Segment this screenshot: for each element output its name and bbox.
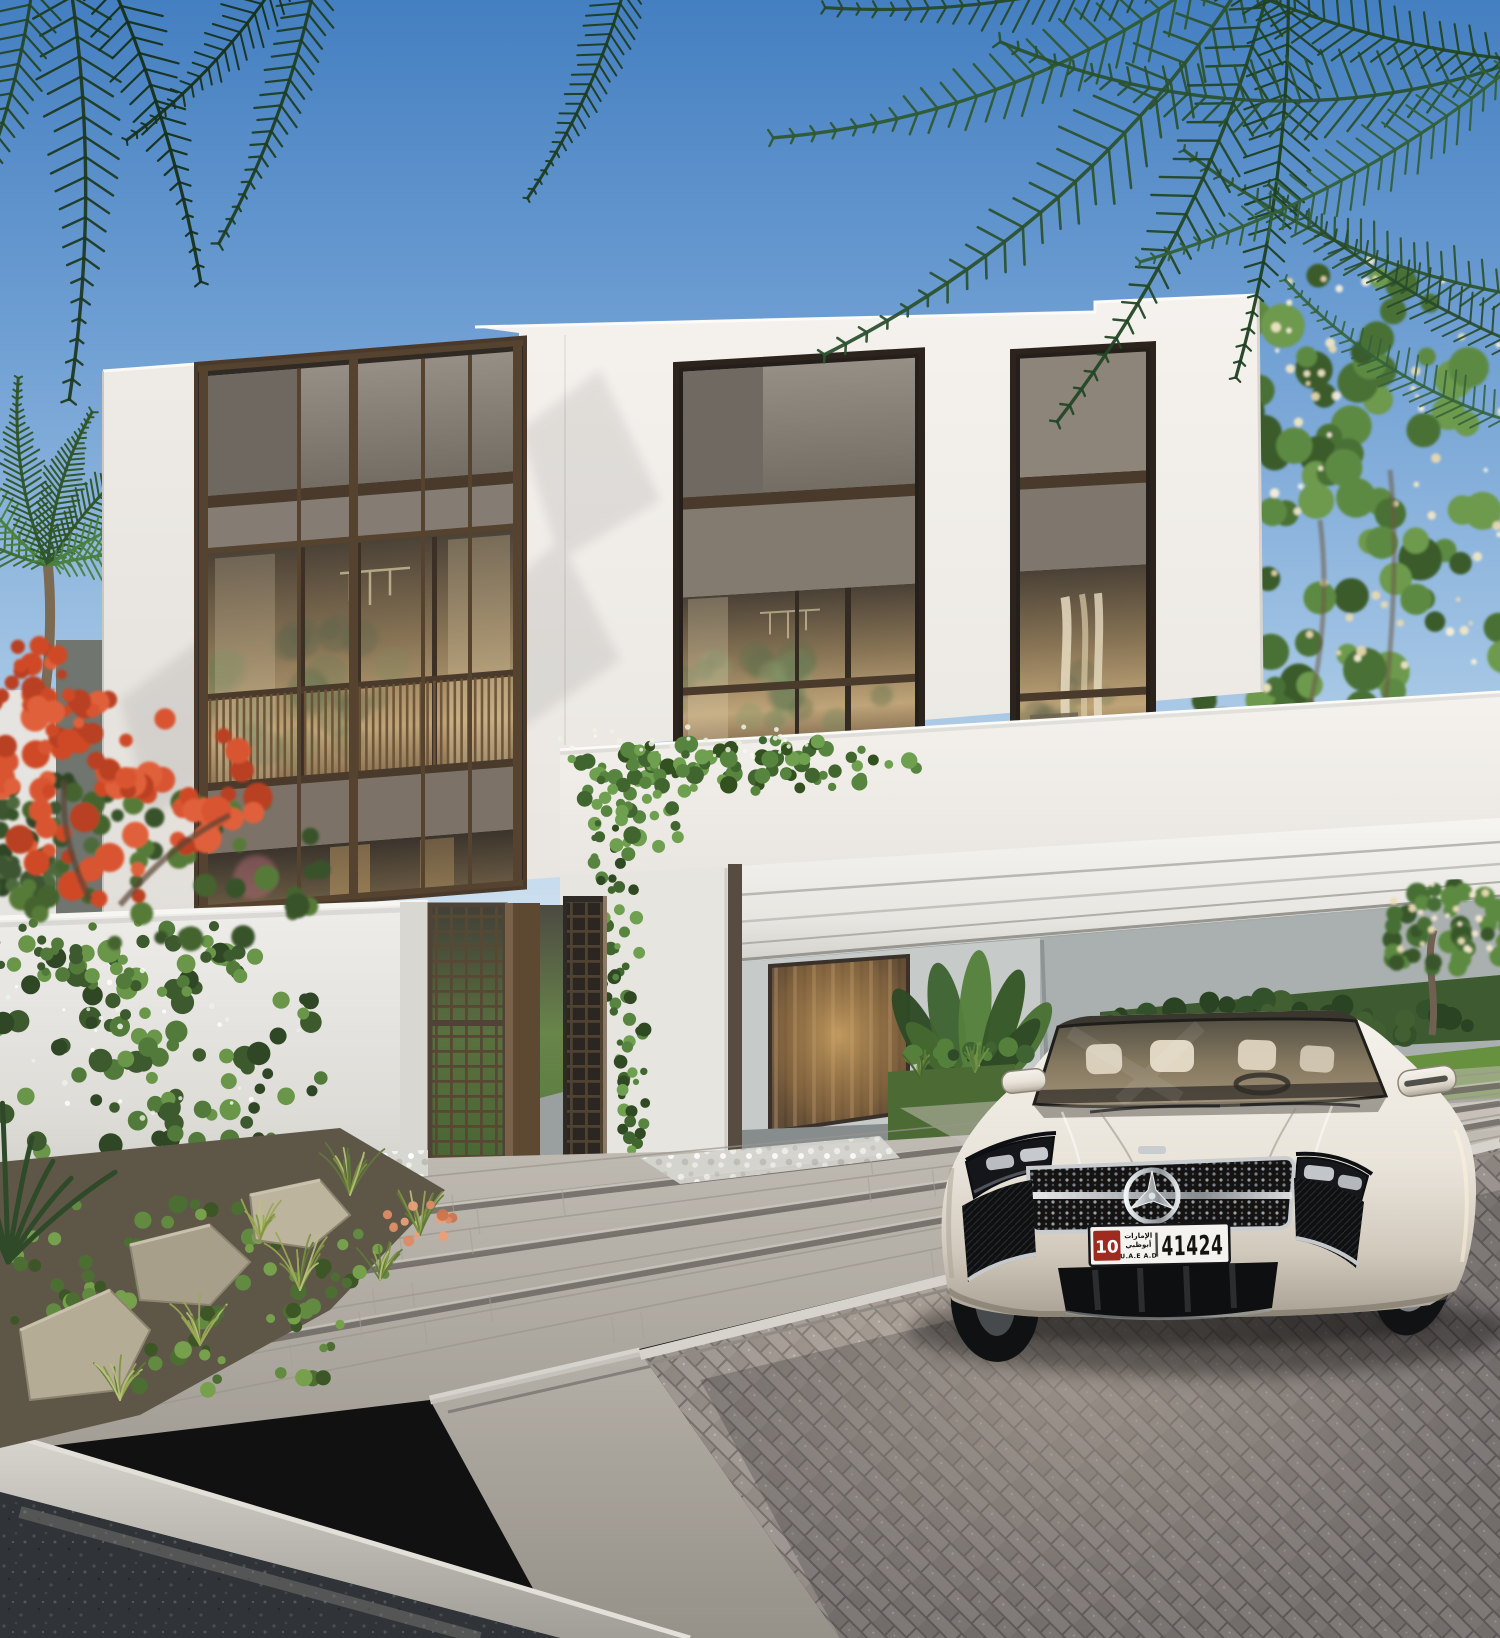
carport-jamb	[728, 864, 742, 1154]
plate-number: 41424	[1161, 1230, 1224, 1262]
plate-region: U.A.E A.D	[1120, 1253, 1157, 1261]
plate-badge-number: 10	[1095, 1237, 1119, 1257]
hood-badge	[1138, 1146, 1166, 1154]
frangipani-trunk	[1430, 930, 1434, 1035]
villa-exterior-render: 10 الإمارات أبوظبي U.A.E A.D 41424	[0, 0, 1500, 1638]
window-1	[662, 350, 922, 748]
plate-arabic-2: أبوظبي	[1125, 1240, 1151, 1250]
entry-door	[770, 956, 908, 1132]
window-2	[994, 344, 1153, 751]
license-plate: 10 الإمارات أبوظبي U.A.E A.D 41424	[1089, 1223, 1230, 1266]
side-mirror-left	[1001, 1068, 1047, 1094]
lower-intake	[1058, 1262, 1278, 1319]
gate-screen-panel	[563, 896, 607, 1164]
left-wall-pier	[103, 364, 196, 915]
gate-leaf-mesh	[430, 905, 505, 1160]
plate-arabic-1: الإمارات	[1124, 1232, 1152, 1241]
pedestrian-gate	[428, 896, 607, 1164]
